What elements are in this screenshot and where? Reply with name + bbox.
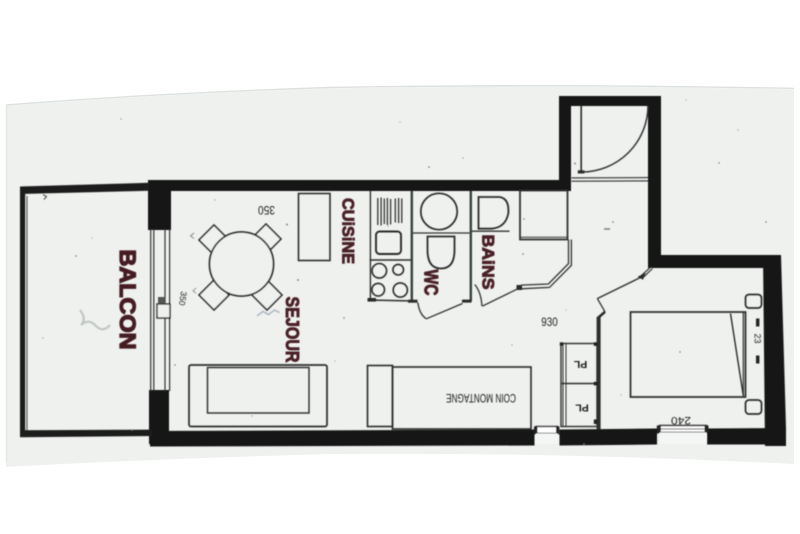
svg-text:240: 240 [671, 414, 691, 426]
svg-text:PL: PL [573, 358, 587, 370]
svg-text:930: 930 [541, 315, 558, 329]
svg-text:350: 350 [258, 203, 275, 215]
svg-text:CUiSiNE: CUiSiNE [339, 198, 357, 264]
svg-text:BAiNS: BAiNS [479, 235, 497, 290]
svg-text:23: 23 [753, 333, 763, 343]
svg-text:WC: WC [420, 270, 441, 296]
svg-text:COIN MONTAGNE: COIN MONTAGNE [446, 391, 516, 405]
svg-text:PL: PL [575, 402, 589, 414]
svg-text:BALCON: BALCON [115, 250, 140, 350]
svg-text:SEJOUR: SEJOUR [282, 297, 303, 363]
